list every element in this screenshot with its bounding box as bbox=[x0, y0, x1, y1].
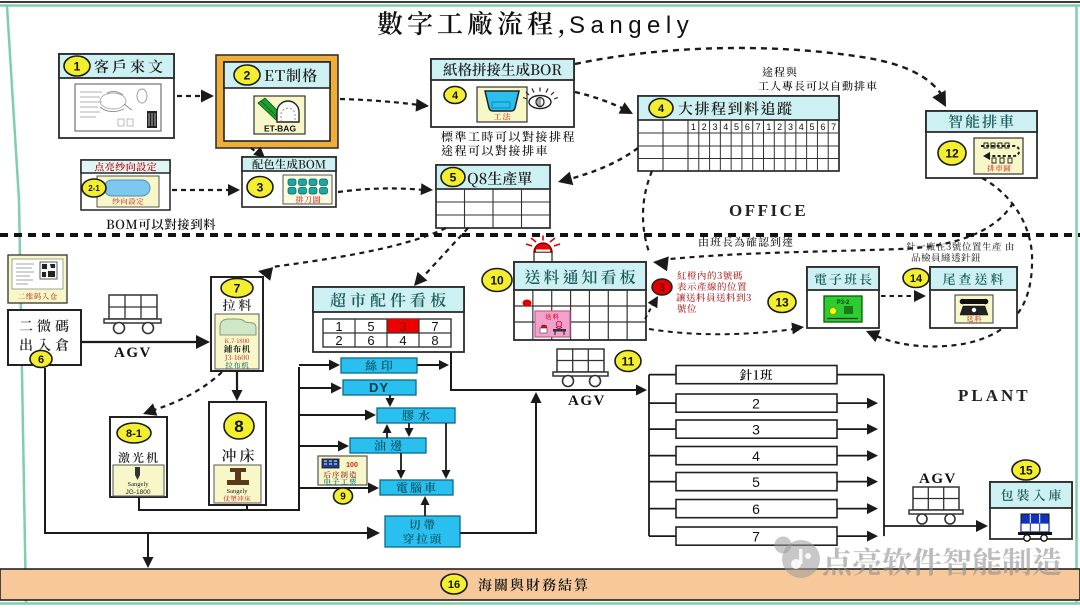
svg-text:1: 1 bbox=[74, 59, 81, 73]
svg-text:8-1: 8-1 bbox=[126, 428, 142, 440]
svg-text:12: 12 bbox=[945, 146, 959, 160]
svg-text:8: 8 bbox=[234, 417, 243, 436]
svg-text:2: 2 bbox=[244, 68, 251, 82]
svg-text:3: 3 bbox=[257, 180, 264, 194]
svg-text:3: 3 bbox=[659, 282, 665, 294]
svg-text:ET-BAG: ET-BAG bbox=[264, 124, 297, 134]
svg-text:7: 7 bbox=[756, 122, 761, 132]
svg-text:DY: DY bbox=[369, 380, 389, 395]
svg-text:Sangely: Sangely bbox=[128, 481, 150, 488]
svg-text:OFFICE: OFFICE bbox=[729, 201, 808, 220]
svg-text:Sangely: Sangely bbox=[227, 488, 249, 495]
svg-text:2: 2 bbox=[702, 122, 707, 132]
svg-text:2: 2 bbox=[335, 333, 342, 348]
svg-text:5: 5 bbox=[367, 319, 374, 334]
svg-text:4: 4 bbox=[799, 122, 804, 132]
svg-text:1: 1 bbox=[691, 122, 696, 132]
svg-text:2: 2 bbox=[752, 396, 760, 412]
svg-text:4: 4 bbox=[452, 90, 459, 102]
svg-text:6: 6 bbox=[820, 122, 825, 132]
svg-text:3: 3 bbox=[752, 422, 760, 438]
svg-text:7: 7 bbox=[831, 122, 836, 132]
svg-text:5: 5 bbox=[734, 122, 739, 132]
svg-text:2: 2 bbox=[777, 122, 782, 132]
svg-text:6: 6 bbox=[367, 333, 374, 348]
svg-text:7: 7 bbox=[752, 529, 760, 545]
svg-text:6: 6 bbox=[745, 122, 750, 132]
svg-text:3: 3 bbox=[712, 122, 717, 132]
svg-text:6: 6 bbox=[38, 354, 44, 366]
svg-text:4: 4 bbox=[723, 122, 728, 132]
svg-text:3: 3 bbox=[399, 319, 406, 334]
svg-text:5: 5 bbox=[450, 170, 457, 184]
svg-text:5: 5 bbox=[810, 122, 815, 132]
svg-text:4: 4 bbox=[658, 103, 665, 115]
svg-text:7: 7 bbox=[234, 281, 241, 295]
svg-text:14: 14 bbox=[910, 273, 923, 285]
svg-text:13: 13 bbox=[775, 295, 789, 309]
svg-text:8: 8 bbox=[431, 333, 438, 348]
svg-text:1: 1 bbox=[766, 122, 771, 132]
svg-text:100: 100 bbox=[346, 462, 358, 469]
svg-text:4: 4 bbox=[752, 448, 760, 464]
svg-text:5: 5 bbox=[752, 474, 760, 490]
svg-text:10: 10 bbox=[490, 273, 504, 287]
svg-text:16: 16 bbox=[448, 579, 460, 591]
svg-text:2-1: 2-1 bbox=[88, 184, 100, 193]
svg-text:Sangely: Sangely bbox=[569, 12, 694, 39]
svg-text:4: 4 bbox=[399, 333, 406, 348]
svg-text:3: 3 bbox=[788, 122, 793, 132]
svg-text:P3-2: P3-2 bbox=[837, 300, 850, 306]
svg-text:1: 1 bbox=[335, 319, 342, 334]
svg-text:6: 6 bbox=[752, 501, 760, 517]
svg-text:JG-1800: JG-1800 bbox=[126, 489, 151, 496]
svg-text:9: 9 bbox=[340, 492, 346, 503]
svg-text:AGV: AGV bbox=[568, 393, 606, 409]
svg-text:15: 15 bbox=[1019, 463, 1033, 477]
svg-text:PLANT: PLANT bbox=[958, 386, 1031, 405]
svg-text:11: 11 bbox=[622, 354, 635, 368]
svg-text:AGV: AGV bbox=[114, 345, 152, 361]
svg-text:7: 7 bbox=[431, 319, 438, 334]
svg-text:AGV: AGV bbox=[919, 471, 957, 487]
